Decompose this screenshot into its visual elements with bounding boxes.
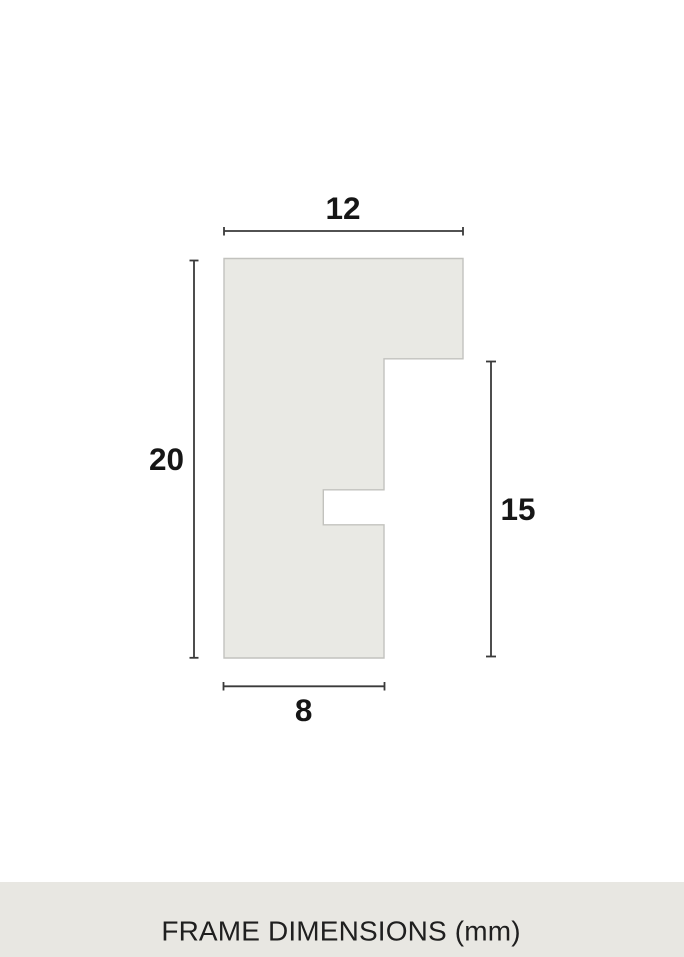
svg-text:12: 12: [325, 190, 360, 226]
svg-text:15: 15: [500, 491, 535, 527]
svg-text:FRAME DIMENSIONS (mm): FRAME DIMENSIONS (mm): [161, 916, 520, 947]
svg-text:20: 20: [149, 441, 184, 477]
svg-text:8: 8: [295, 692, 313, 728]
